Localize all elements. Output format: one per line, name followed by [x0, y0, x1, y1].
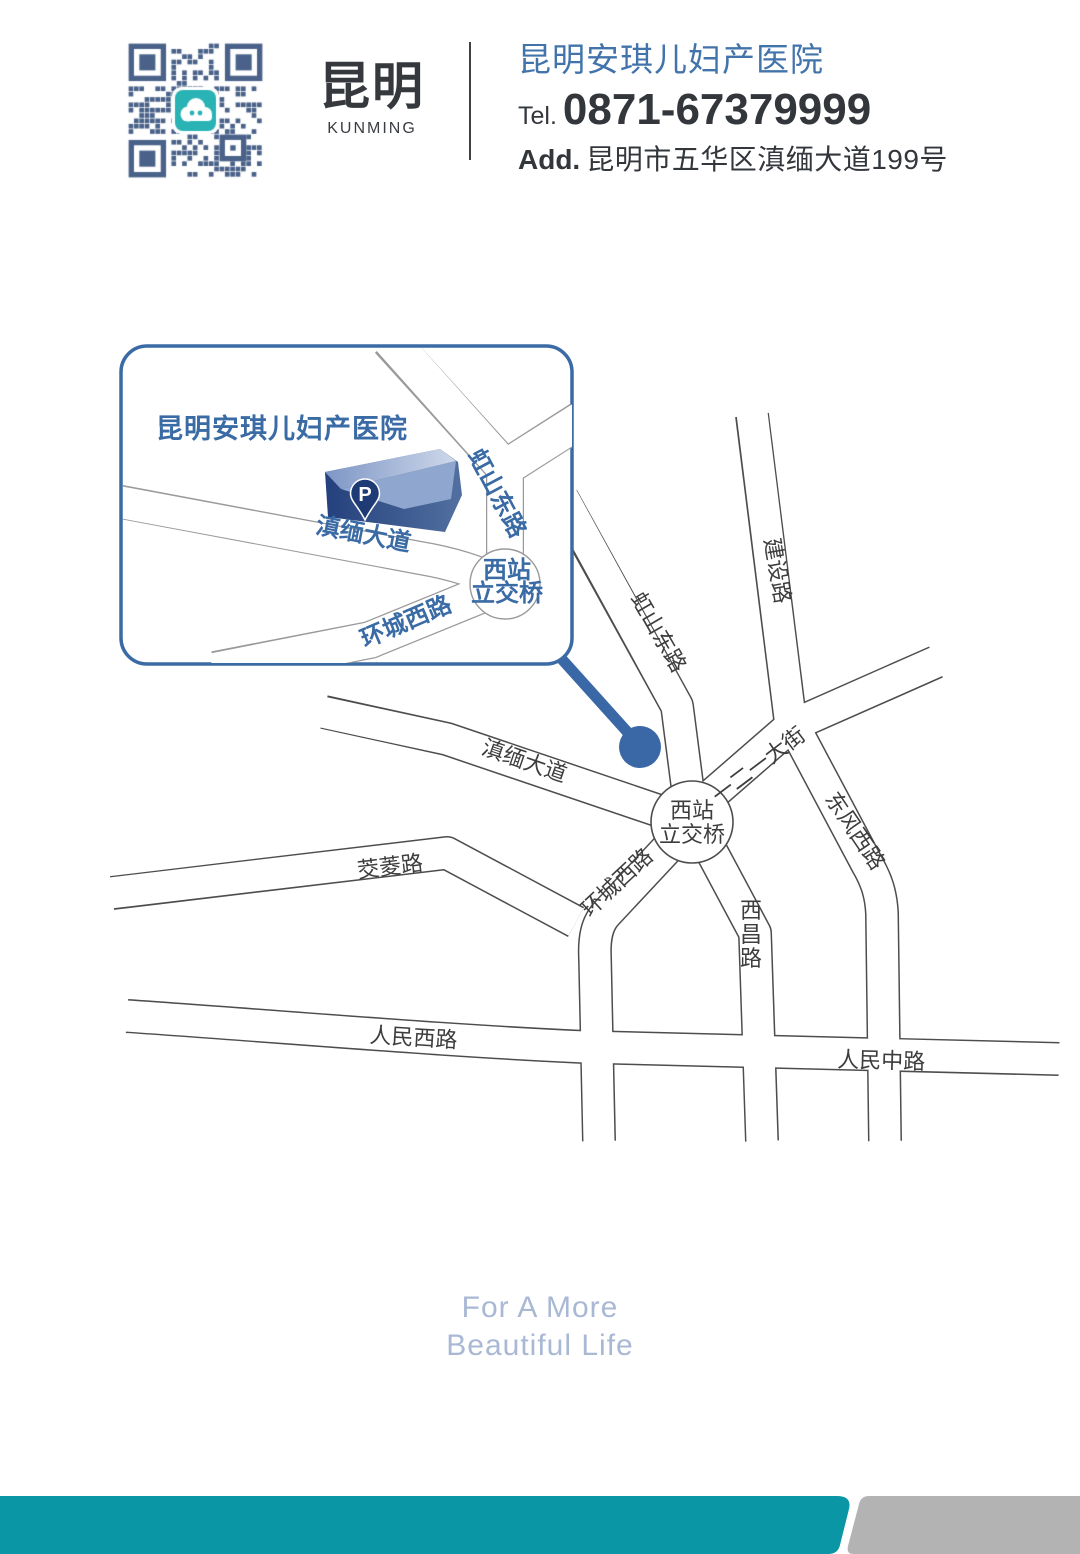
interchange-label-line2: 立交桥 [659, 822, 725, 847]
hospital-marker [619, 726, 661, 768]
footer-bars [0, 1496, 1080, 1554]
inset-title: 昆明安琪儿妇产医院 [156, 413, 408, 444]
road-label-xichang: 西昌路 [740, 898, 762, 971]
slogan: For A More Beautiful Life [0, 1289, 1080, 1365]
gray-bar [848, 1496, 1080, 1554]
slogan-line1: For A More [0, 1289, 1080, 1327]
inset-interchange-label-line2: 立交桥 [471, 579, 544, 607]
slogan-line2: Beautiful Life [0, 1327, 1080, 1365]
interchange-label-line1: 西站 [670, 798, 714, 823]
teal-bar [0, 1496, 850, 1554]
parking-pin-label: P [358, 484, 371, 506]
road-label-renmin-middle: 人民中路 [837, 1047, 926, 1074]
page: { "header": { "brand": { "cn": "昆明", "en… [0, 0, 1080, 1554]
